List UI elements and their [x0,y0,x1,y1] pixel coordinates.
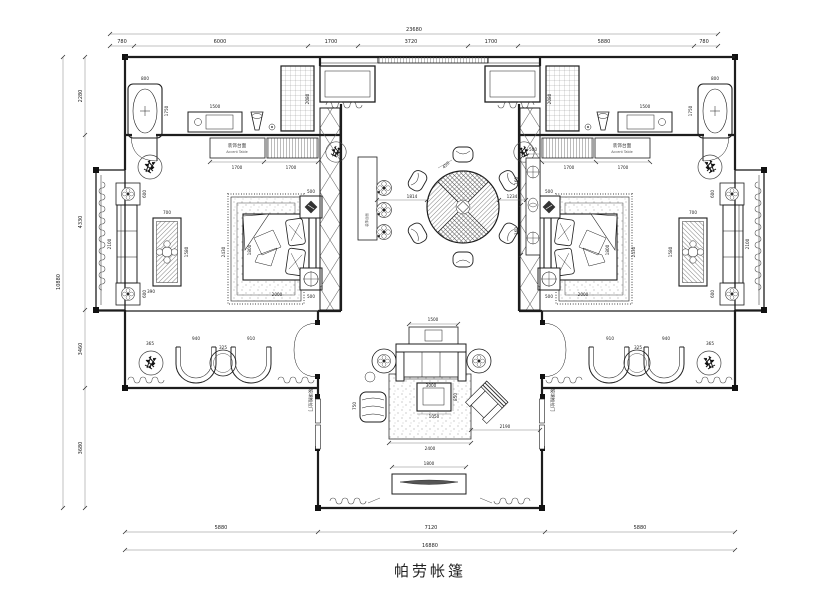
dim-label: 2430 [631,246,636,257]
accent-armchair [465,381,507,423]
dim-label: 365 [146,341,154,346]
window-seat [99,182,140,305]
dim-label: 850 [453,393,458,401]
dim-label: 325 [634,345,642,350]
hall-console-left [358,157,391,240]
dim-label: 5880 [215,525,228,531]
dim-label: 2400 [425,446,436,451]
central-hall [125,57,735,494]
dim-label: 390 [147,289,155,294]
dim-label: 600 [710,290,715,298]
dim-label: 1800 [424,461,435,466]
dim-label: 2190 [500,424,511,429]
dim-label: 3680 [78,442,84,455]
dim-label: 600 [142,190,147,198]
vanity-stool [251,112,263,130]
dim-label: 1580 [184,246,189,257]
dim-label: 5880 [598,39,611,45]
sofa-console [409,327,458,344]
dim-label: 1700 [325,39,338,45]
tv-console [390,465,468,494]
dim-label: 910 [247,336,255,341]
dim-label: 780 [699,39,709,45]
dim-label: 2000 [272,292,283,297]
dim-label: 2430 [221,246,226,257]
dim-label: 1700 [618,165,629,170]
dim-label: 3460 [78,343,84,356]
dim-label: 500 [529,147,537,152]
closet-niche [320,66,375,102]
dim-label: 940 [192,336,200,341]
dim-label: 1580 [668,246,673,257]
vanity-counter [188,112,242,132]
dim-label: 325 [219,345,227,350]
dim-label: 1800 [605,244,610,255]
dim-label: 800 [141,76,149,81]
dim-label: 5880 [634,525,647,531]
dim-label: 780 [117,39,127,45]
dim-label: 1750 [688,105,693,116]
accent-table-label-en: Accent Table [611,150,632,154]
lounge-area [128,347,314,383]
dim-label: 1700 [286,165,297,170]
terrace-curtain [330,498,366,504]
sliding-door-label-right: 玻璃推拉门 [549,389,556,412]
dim-label: 160 [514,177,519,185]
dim-label: 1050 [429,414,440,419]
dim-total-left: 10880 [56,274,62,290]
dining-table [375,147,528,267]
dim-label: 1700 [232,165,243,170]
nightstand-top [300,196,322,218]
chaise-lounge [360,392,386,422]
dim-label: 1234 [507,194,518,199]
dim-label: 500 [545,294,553,299]
side-table-right [467,349,491,373]
swing-doors [294,323,318,377]
dim-label: 2100 [107,238,112,249]
dim-labels: 23680 780 6000 1700 3720 1700 5880 780 1… [56,27,750,549]
dim-label: 1500 [640,104,651,109]
dim-label: 500 [307,294,315,299]
wardrobe-strip [320,108,340,310]
dim-label: 2280 [78,90,84,103]
dim-label: 3000 [426,383,437,388]
dim-label: 600 [710,190,715,198]
dim-label: 700 [689,210,697,215]
dim-label: 1500 [428,317,439,322]
dim-label: 1500 [210,104,221,109]
dim-label: 1800 [247,244,252,255]
dim-label: 1814 [407,194,418,199]
dim-label: 700 [163,210,171,215]
dim-label: 2080 [547,93,552,104]
wing-right [430,54,767,511]
dim-label: 160 [514,227,519,235]
tea-table [153,218,181,286]
sliding-door-label-left: 玻璃推拉门 [307,389,314,412]
radiator-cabinet [267,138,318,158]
dim-label: 1750 [164,105,169,116]
dim-label: 800 [711,76,719,81]
dim-label: 4330 [78,216,84,229]
bath-door-arc [131,135,157,161]
sliding-door [316,399,321,449]
drawing-title: 帕劳帐篷 [394,562,466,580]
living-area [360,322,542,445]
dim-label: 365 [706,341,714,346]
floorplan-page: 23680 780 6000 1700 3720 1700 5880 780 1… [0,0,837,592]
dim-label: 2000 [578,292,589,297]
dim-total-bottom: 16880 [422,543,438,549]
dim-label: 940 [662,336,670,341]
dim-label: 2100 [745,238,750,249]
hall-console-label: 装饰台面 [364,213,369,227]
bathtub [128,84,162,138]
sofa [396,344,466,381]
niche-curtain [326,102,362,108]
dim-label: 910 [606,336,614,341]
dim-label: 750 [352,402,357,410]
dim-label: 6000 [214,39,227,45]
accent-table-label-cn: 装饰台面 [228,142,247,149]
dim-total-top: 23680 [406,27,422,33]
floor-drain [269,124,275,130]
entrance-threshold [378,57,488,63]
floorplan-drawing: 23680 780 6000 1700 3720 1700 5880 780 1… [0,0,837,592]
dim-label: 2080 [305,93,310,104]
plant [138,155,162,179]
dim-label: 3720 [405,39,418,45]
dim-label: 1700 [485,39,498,45]
accent-table-label-en: Accent Table [226,150,247,154]
nightstand-bottom [300,268,322,290]
dim-label: 500 [307,189,315,194]
accent-table-label-cn: 装饰台面 [613,142,632,149]
wing-left [93,54,430,511]
dim-label: 500 [545,189,553,194]
dim-label: 1700 [564,165,575,170]
dim-label: 7120 [425,525,438,531]
